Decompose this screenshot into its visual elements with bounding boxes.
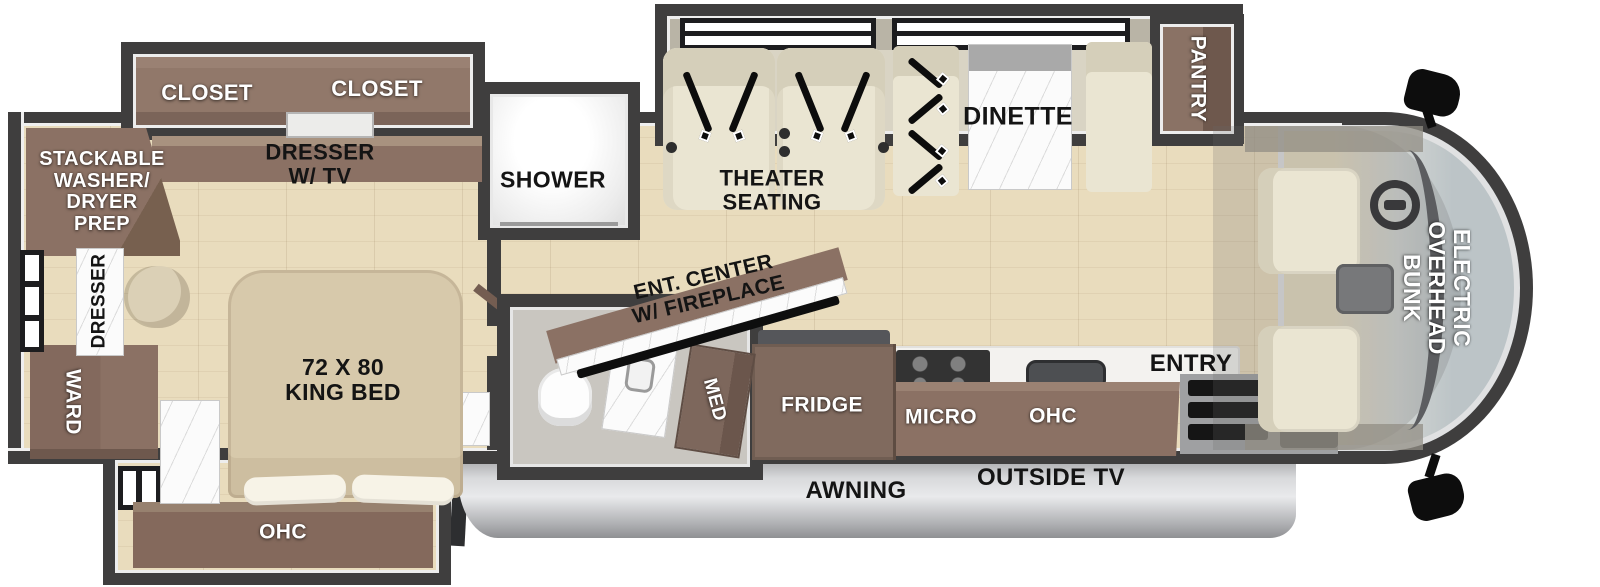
king-bed xyxy=(228,270,463,498)
fridge xyxy=(752,344,896,460)
wardrobe-cabinet xyxy=(30,345,158,459)
dinette-bench-right xyxy=(1086,42,1152,192)
living-window-right-bar xyxy=(896,31,1126,36)
side-mirror-top xyxy=(1402,66,1465,120)
hull-wall-top-right xyxy=(1238,112,1342,126)
bedroom-tv xyxy=(286,112,374,138)
cab-trim-top xyxy=(1245,126,1423,152)
shower-door-track xyxy=(500,222,618,226)
theater-seat-left xyxy=(663,48,775,210)
cupholder xyxy=(779,128,790,139)
side-mirror-bottom xyxy=(1406,470,1469,524)
bed-pillow-right xyxy=(352,474,455,506)
cupholder xyxy=(779,146,790,157)
bedroom-window-left-bar xyxy=(22,281,42,287)
bedroom-window-left xyxy=(20,250,44,352)
bedroom-ohc-cabinet xyxy=(133,502,433,568)
rv-floorplan: CLOSET CLOSET DRESSER W/ TV STACKABLE WA… xyxy=(0,0,1600,587)
passenger-seat xyxy=(1258,326,1360,432)
living-window-left-bar xyxy=(684,31,872,36)
steering-hub xyxy=(1384,200,1406,210)
cupholder xyxy=(878,142,889,153)
bedroom-window-left-bar xyxy=(22,315,42,321)
pantry-cabinet xyxy=(1150,14,1244,144)
dresser-cabinet xyxy=(152,136,482,182)
cupholder xyxy=(666,142,677,153)
driver-seat xyxy=(1258,168,1360,274)
dresser-marble-top xyxy=(76,248,124,356)
shower-box xyxy=(478,82,640,240)
bed-pillow-left xyxy=(244,474,347,506)
nightstand-left xyxy=(160,400,220,504)
dinette-table xyxy=(968,44,1072,190)
vanity-stool xyxy=(128,266,190,328)
center-console xyxy=(1336,264,1394,314)
micro-ohc-cabinet xyxy=(890,382,1180,456)
